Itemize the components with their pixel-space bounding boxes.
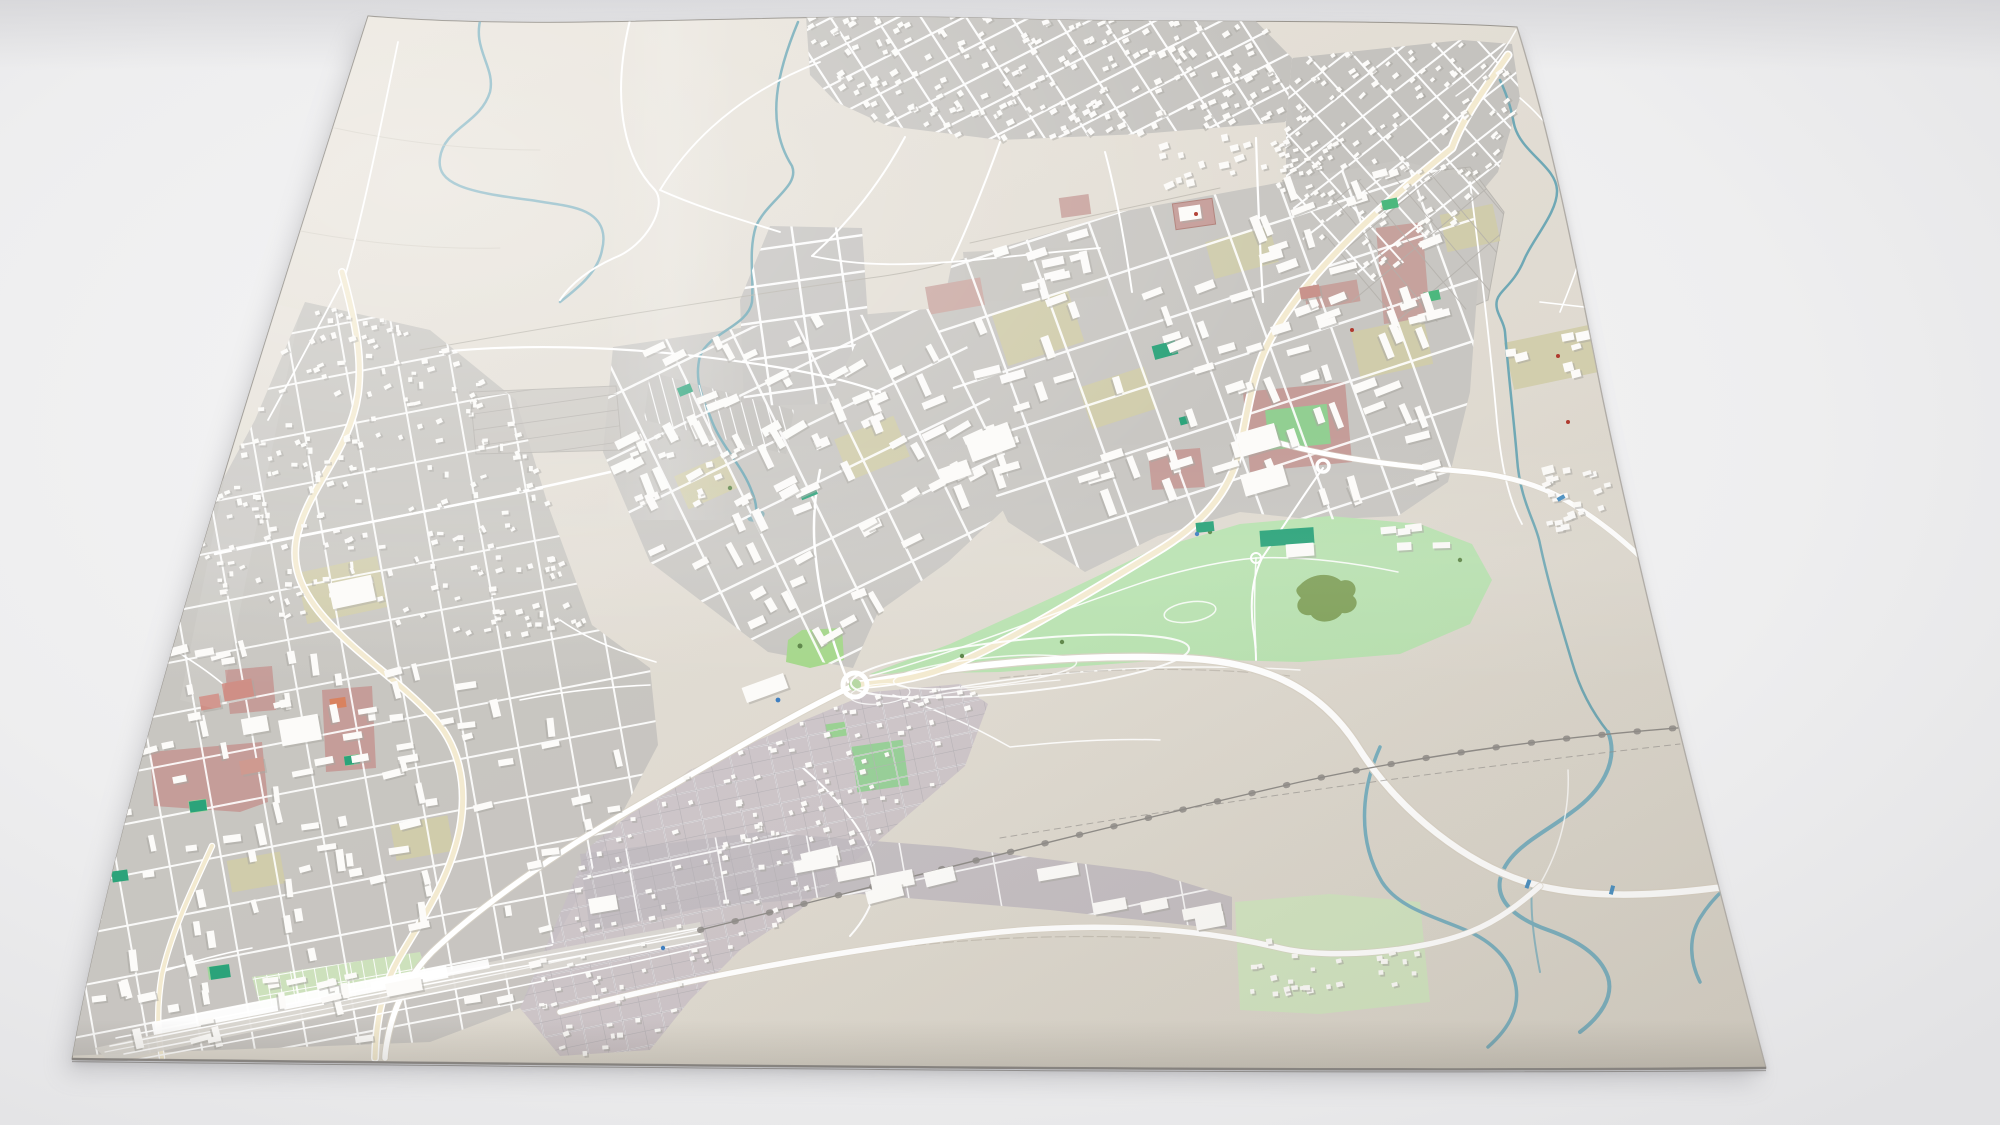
photo-scene	[0, 0, 2000, 1125]
map-render-canvas	[0, 0, 2000, 1125]
